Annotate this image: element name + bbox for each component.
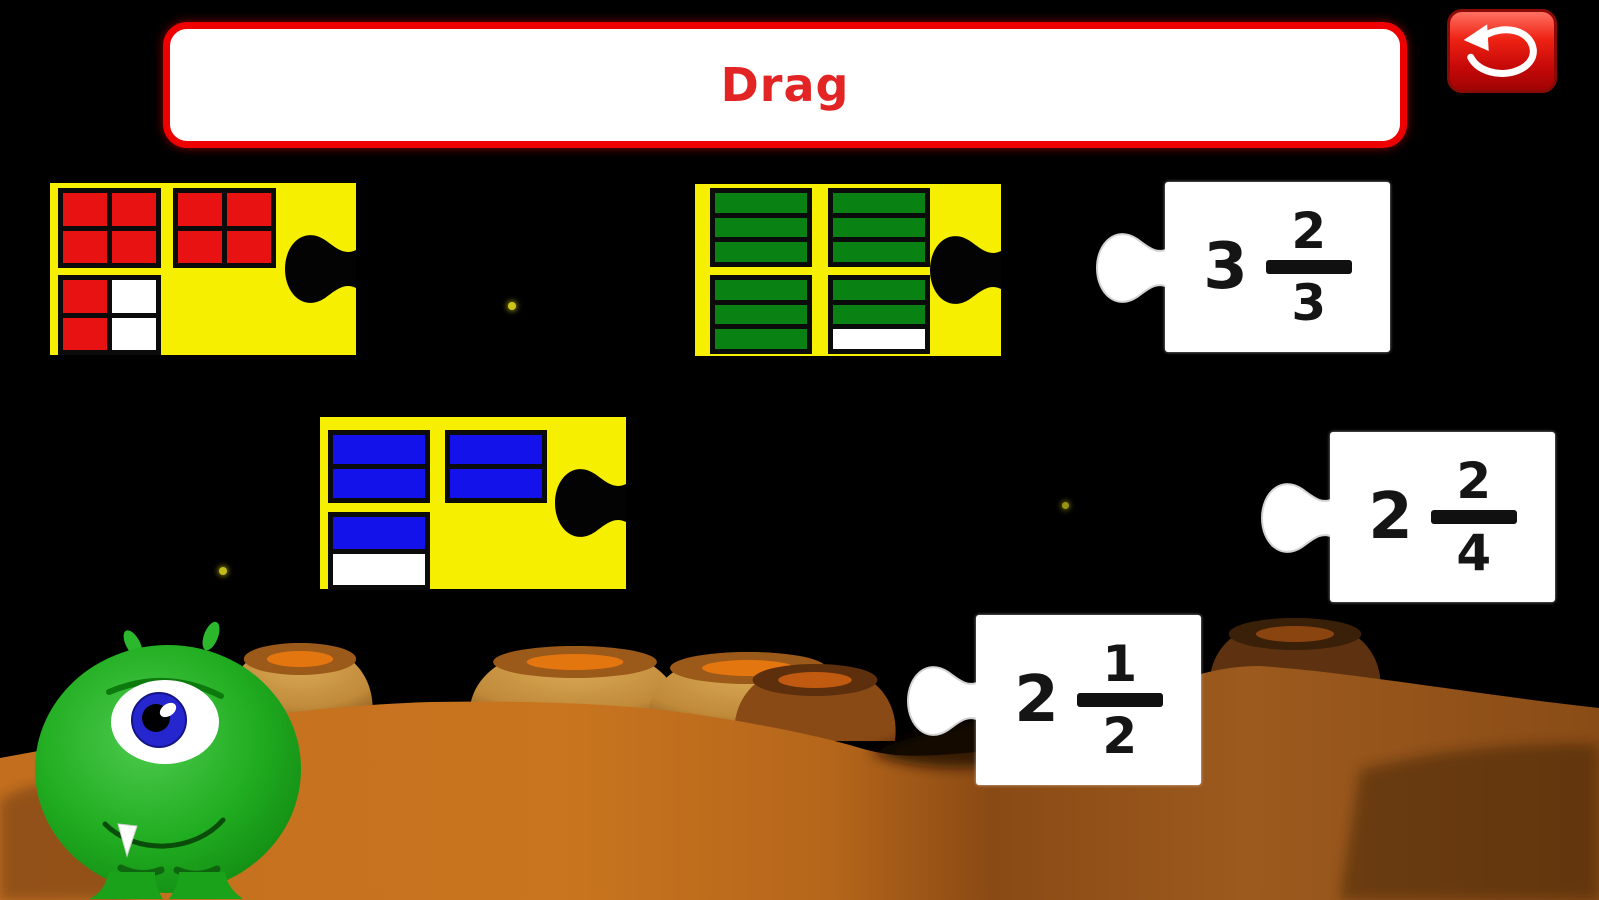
filled-cell <box>178 231 222 264</box>
filled-cell <box>715 193 807 213</box>
numerator: 1 <box>1102 639 1137 689</box>
fraction-picture-piece-blue[interactable] <box>320 417 626 589</box>
fraction-block <box>710 188 812 267</box>
puzzle-socket <box>284 228 356 310</box>
undo-button[interactable] <box>1447 9 1557 93</box>
filled-cell <box>178 193 222 226</box>
filled-cell <box>715 242 807 262</box>
whole-number: 3 <box>1203 235 1248 299</box>
fraction-block <box>328 430 430 503</box>
filled-cell <box>833 218 925 238</box>
game-stage: Drag 3 2 <box>0 0 1599 900</box>
puzzle-tab <box>1096 227 1168 309</box>
empty-cell <box>333 554 425 586</box>
whole-number: 2 <box>1368 485 1413 549</box>
filled-cell <box>833 193 925 213</box>
puzzle-socket <box>554 462 626 544</box>
filled-cell <box>715 305 807 325</box>
empty-cell <box>112 280 156 313</box>
filled-cell <box>833 242 925 262</box>
whole-number: 2 <box>1014 668 1059 732</box>
fraction-block <box>828 188 930 267</box>
puzzle-socket <box>929 229 1001 311</box>
fraction-bar <box>1431 510 1517 524</box>
instruction-text: Drag <box>721 58 850 112</box>
filled-cell <box>833 305 925 325</box>
mixed-number-piece-2-2-4[interactable]: 2 2 4 <box>1260 432 1557 608</box>
puzzle-tab <box>907 660 979 742</box>
filled-cell <box>333 435 425 464</box>
fraction-block <box>828 275 930 354</box>
filled-cell <box>715 329 807 349</box>
fraction-block <box>328 512 430 590</box>
mixed-number-piece-3-2-3[interactable]: 3 2 3 <box>1095 182 1392 358</box>
filled-cell <box>450 469 542 498</box>
filled-cell <box>715 218 807 238</box>
fraction-block <box>710 275 812 354</box>
filled-cell <box>333 469 425 498</box>
fraction-picture-piece-green[interactable] <box>695 184 1001 356</box>
fraction: 2 4 <box>1431 456 1517 578</box>
filled-cell <box>833 280 925 300</box>
empty-cell <box>112 318 156 351</box>
fraction-block <box>173 188 276 268</box>
undo-arrow-icon <box>1459 18 1545 84</box>
puzzle-tab <box>1261 477 1333 559</box>
filled-cell <box>112 231 156 264</box>
fraction-block <box>58 275 161 355</box>
fraction-picture-piece-red[interactable] <box>50 183 356 355</box>
fraction: 2 3 <box>1266 206 1352 328</box>
mixed-number-card: 3 2 3 <box>1165 182 1390 352</box>
numerator: 2 <box>1456 456 1491 506</box>
fraction-block <box>58 188 161 268</box>
filled-cell <box>63 231 107 264</box>
filled-cell <box>333 517 425 549</box>
empty-cell <box>833 329 925 349</box>
instruction-banner: Drag <box>163 22 1407 148</box>
filled-cell <box>227 231 271 264</box>
alien-foot <box>89 872 163 899</box>
mixed-number-card: 2 1 2 <box>976 615 1201 785</box>
fraction-block <box>445 430 547 503</box>
fraction: 1 2 <box>1077 639 1163 761</box>
filled-cell <box>227 193 271 226</box>
filled-cell <box>112 193 156 226</box>
filled-cell <box>450 435 542 464</box>
mixed-number-card: 2 2 4 <box>1330 432 1555 602</box>
filled-cell <box>63 318 107 351</box>
denominator: 2 <box>1102 711 1137 761</box>
numerator: 2 <box>1291 206 1326 256</box>
denominator: 3 <box>1291 278 1326 328</box>
antenna-tip <box>199 619 223 652</box>
fraction-bar <box>1077 693 1163 707</box>
fraction-bar <box>1266 260 1352 274</box>
filled-cell <box>715 280 807 300</box>
filled-cell <box>63 193 107 226</box>
right-corner-shade <box>1340 744 1599 900</box>
filled-cell <box>63 280 107 313</box>
alien-character <box>25 572 315 900</box>
denominator: 4 <box>1456 528 1491 578</box>
mixed-number-piece-2-1-2[interactable]: 2 1 2 <box>906 615 1203 791</box>
